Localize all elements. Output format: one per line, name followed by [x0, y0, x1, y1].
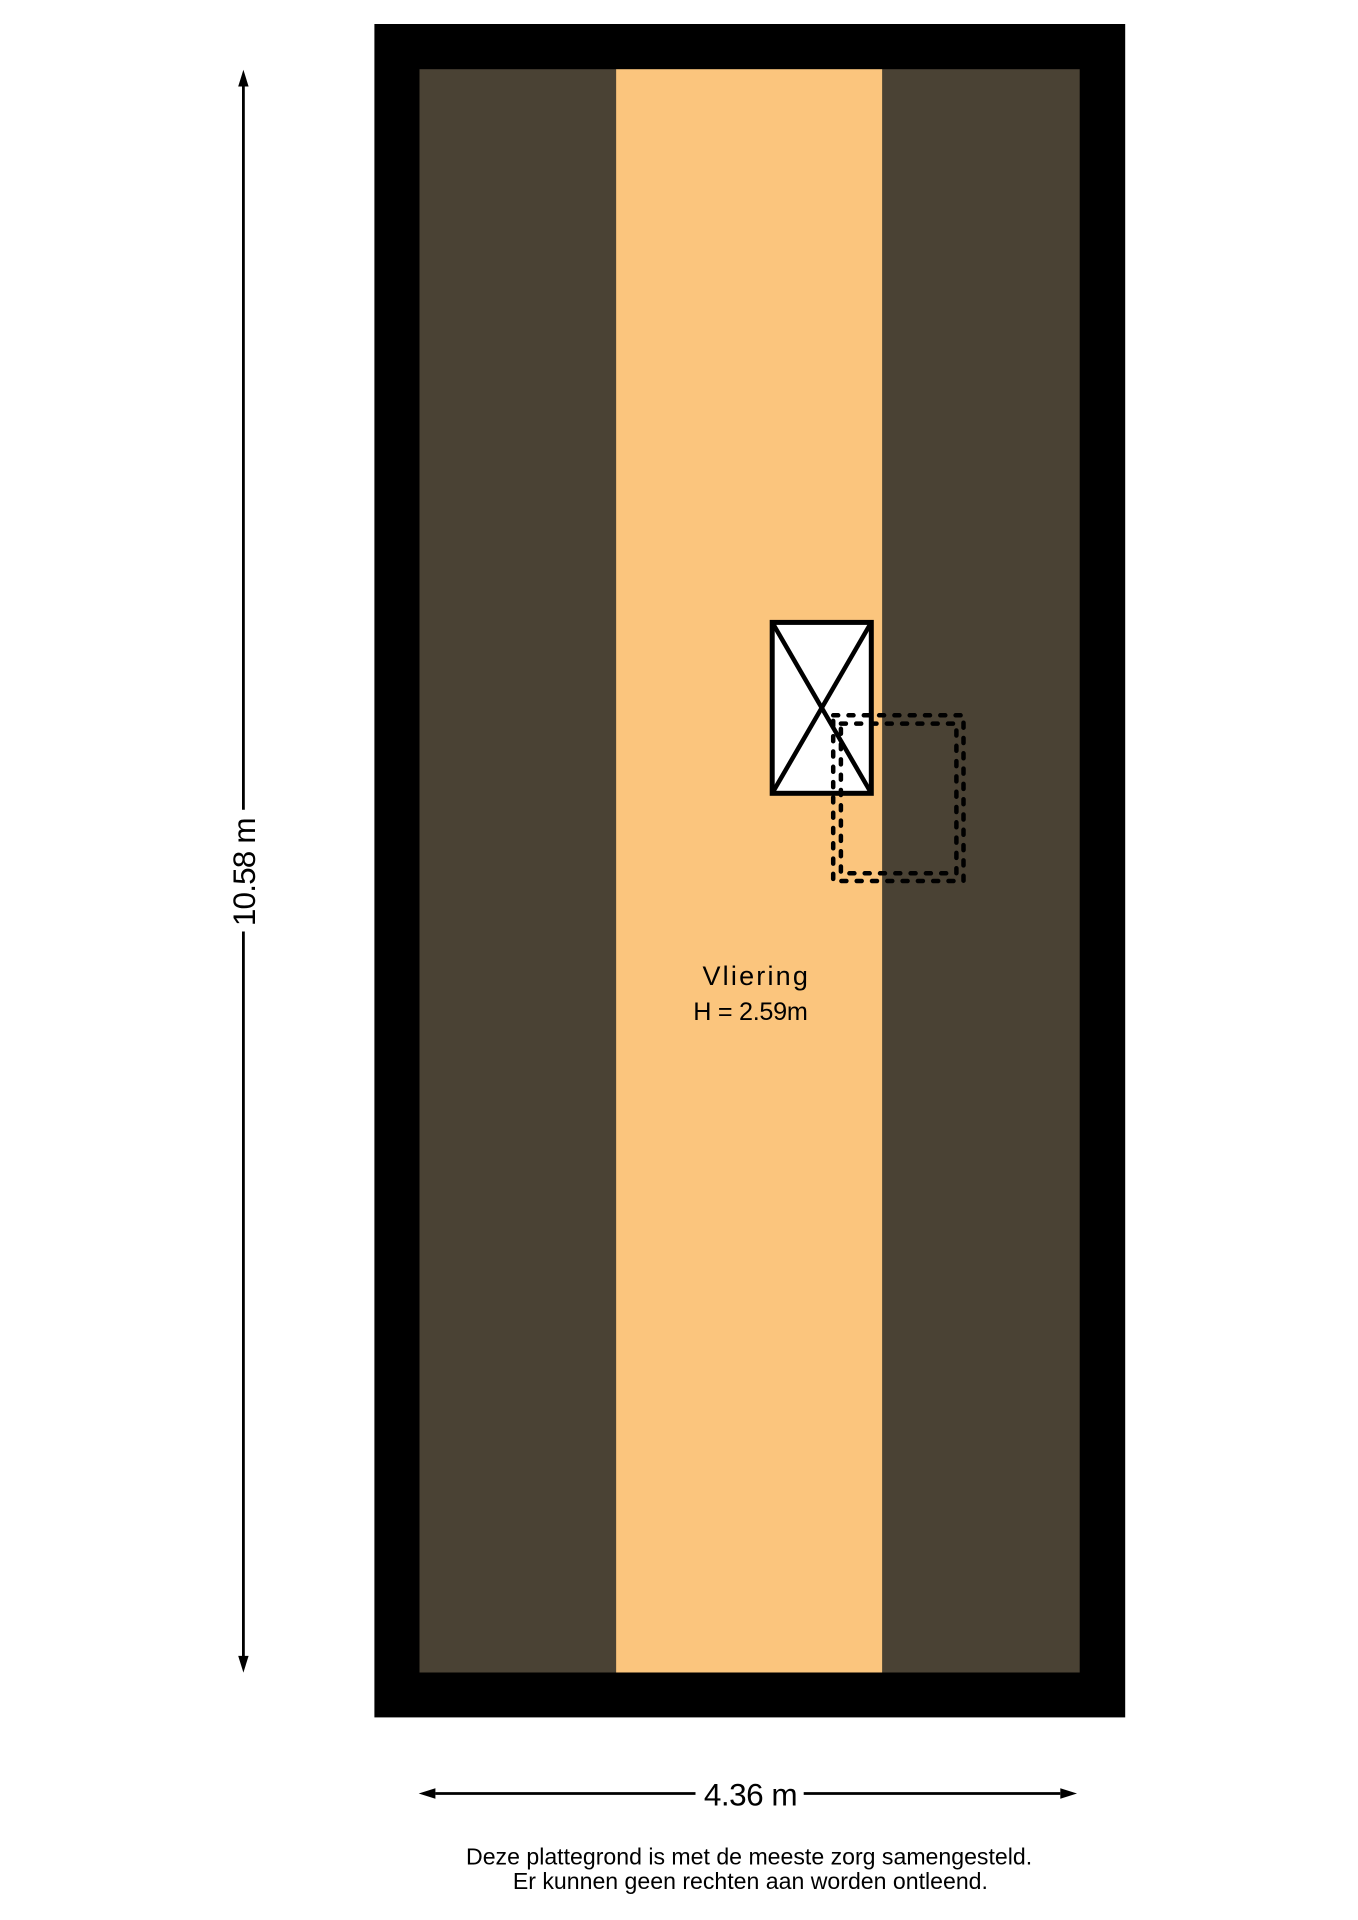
- svg-text:Deze plattegrond is met de mee: Deze plattegrond is met de meeste zorg s…: [466, 1844, 1032, 1870]
- svg-text:10.58 m: 10.58 m: [226, 818, 262, 926]
- svg-text:Er kunnen geen rechten aan wor: Er kunnen geen rechten aan worden ontlee…: [513, 1868, 988, 1894]
- svg-text:4.36 m: 4.36 m: [704, 1776, 797, 1812]
- svg-text:Vliering: Vliering: [702, 961, 810, 991]
- svg-text:H = 2.59m: H = 2.59m: [693, 998, 807, 1026]
